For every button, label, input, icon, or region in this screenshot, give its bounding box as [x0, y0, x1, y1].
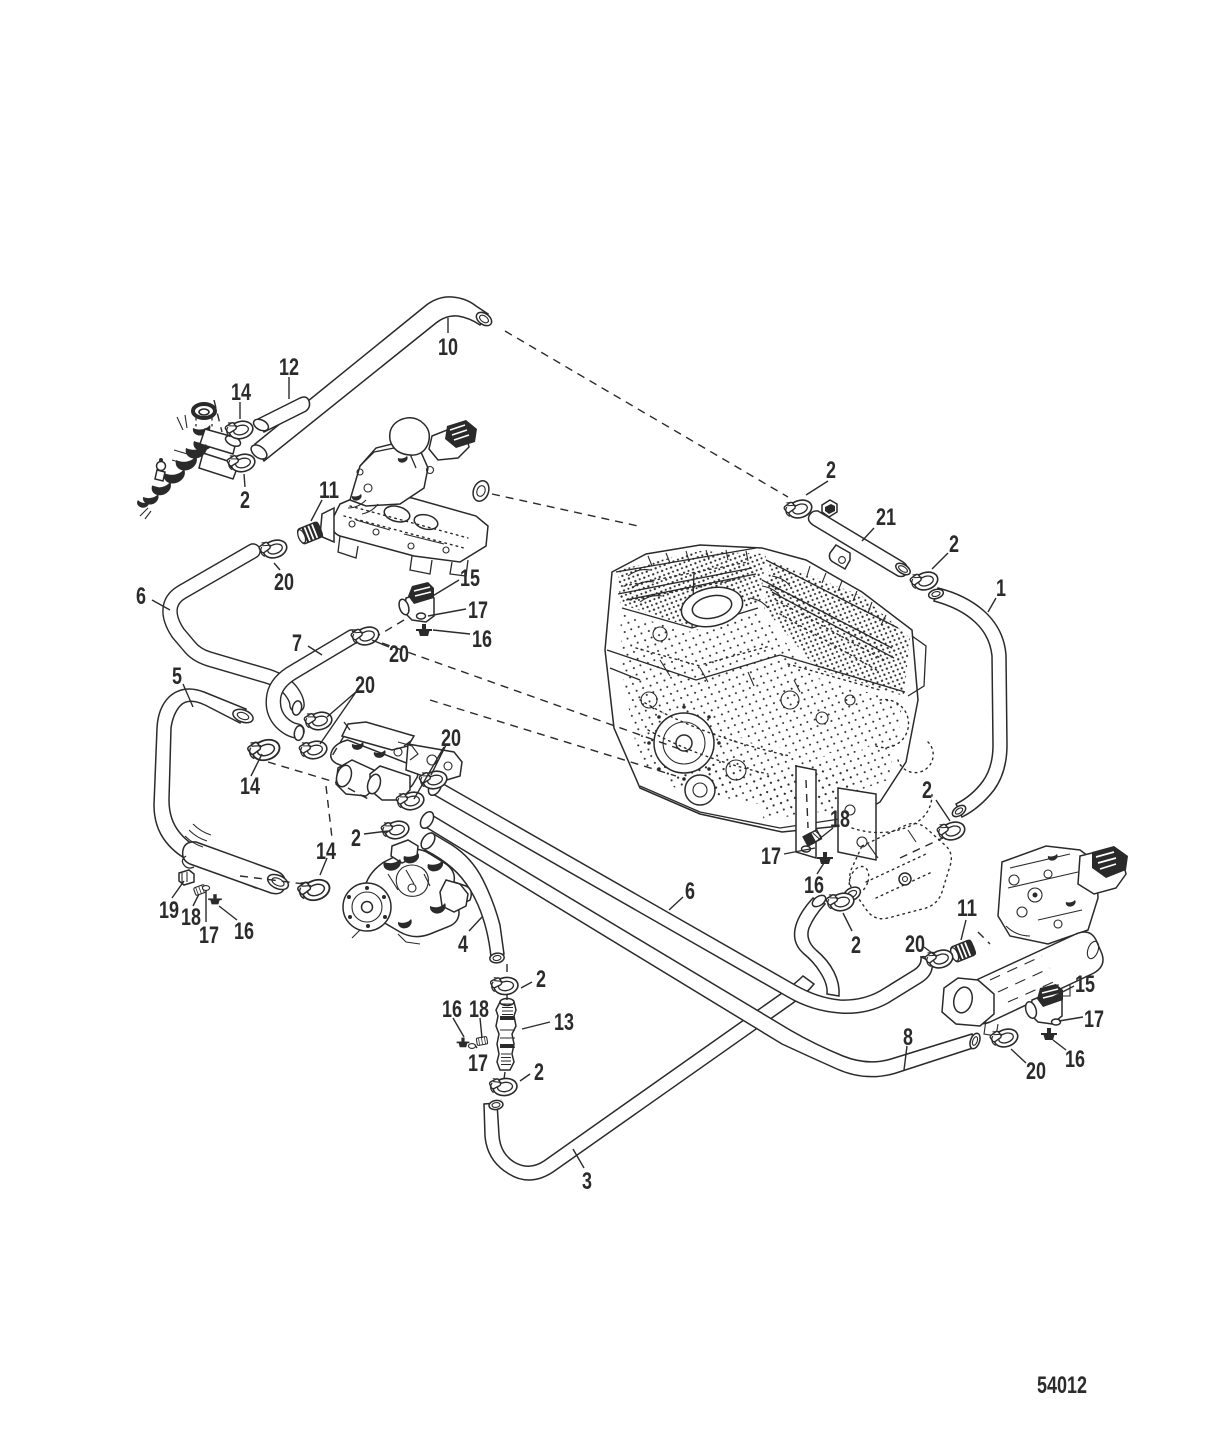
- svg-text:6: 6: [136, 583, 146, 610]
- svg-text:11: 11: [319, 477, 339, 504]
- svg-text:11: 11: [957, 895, 977, 922]
- svg-text:21: 21: [876, 504, 896, 531]
- svg-text:14: 14: [316, 838, 336, 865]
- svg-text:15: 15: [460, 565, 480, 592]
- svg-text:17: 17: [199, 922, 219, 949]
- svg-text:20: 20: [274, 569, 294, 596]
- svg-text:17: 17: [468, 1050, 488, 1077]
- svg-text:20: 20: [389, 641, 409, 668]
- svg-text:17: 17: [468, 597, 488, 624]
- svg-text:13: 13: [554, 1009, 574, 1036]
- svg-text:2: 2: [949, 531, 959, 558]
- svg-text:20: 20: [441, 725, 461, 752]
- svg-text:16: 16: [442, 996, 462, 1023]
- svg-text:16: 16: [1065, 1046, 1085, 1073]
- svg-text:18: 18: [469, 996, 489, 1023]
- svg-text:18: 18: [830, 806, 850, 833]
- svg-text:18: 18: [181, 904, 201, 931]
- svg-text:2: 2: [534, 1059, 544, 1086]
- svg-text:15: 15: [1075, 971, 1095, 998]
- svg-text:2: 2: [536, 966, 546, 993]
- svg-text:2: 2: [240, 487, 250, 514]
- svg-text:14: 14: [231, 379, 251, 406]
- svg-text:2: 2: [351, 825, 361, 852]
- svg-text:19: 19: [159, 897, 179, 924]
- svg-text:12: 12: [279, 354, 299, 381]
- svg-text:1: 1: [996, 575, 1006, 602]
- svg-text:16: 16: [234, 918, 254, 945]
- svg-text:20: 20: [1026, 1058, 1046, 1085]
- svg-text:4: 4: [458, 931, 468, 958]
- svg-text:20: 20: [905, 931, 925, 958]
- svg-text:10: 10: [438, 334, 458, 361]
- svg-text:3: 3: [582, 1168, 592, 1195]
- svg-text:16: 16: [472, 626, 492, 653]
- svg-text:5: 5: [172, 663, 182, 690]
- svg-text:2: 2: [922, 777, 932, 804]
- svg-text:8: 8: [903, 1024, 913, 1051]
- svg-text:54012: 54012: [1037, 1372, 1087, 1399]
- svg-text:2: 2: [826, 457, 836, 484]
- svg-text:20: 20: [355, 672, 375, 699]
- svg-text:17: 17: [1084, 1006, 1104, 1033]
- svg-text:7: 7: [292, 630, 302, 657]
- svg-text:14: 14: [240, 773, 260, 800]
- svg-text:2: 2: [851, 932, 861, 959]
- svg-text:17: 17: [761, 843, 781, 870]
- svg-text:16: 16: [804, 872, 824, 899]
- svg-text:6: 6: [685, 878, 695, 905]
